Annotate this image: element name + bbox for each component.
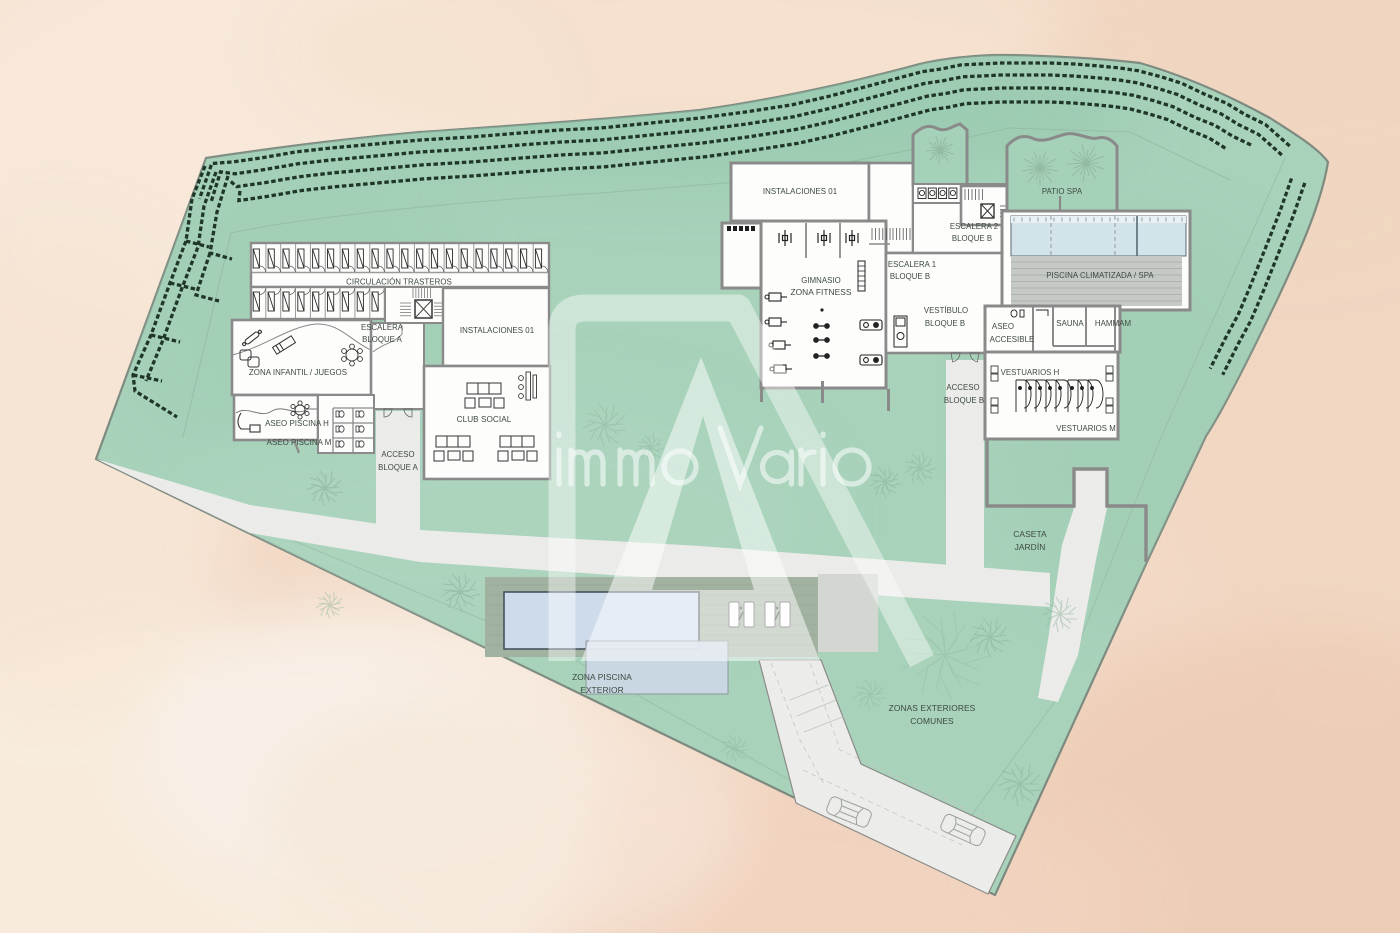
svg-text:BLOQUE B: BLOQUE B (925, 319, 965, 328)
svg-text:ASEO PISCINA M: ASEO PISCINA M (267, 438, 332, 447)
svg-text:ACCESO: ACCESO (381, 450, 414, 459)
svg-text:ASEO PISCINA H: ASEO PISCINA H (265, 419, 329, 428)
svg-text:BLOQUE B: BLOQUE B (890, 272, 930, 281)
svg-text:ASEO: ASEO (992, 322, 1014, 331)
svg-text:ZONAS EXTERIORES: ZONAS EXTERIORES (889, 703, 976, 713)
svg-text:ESCALERA 2: ESCALERA 2 (950, 222, 998, 231)
svg-text:ESCALERA: ESCALERA (361, 323, 404, 332)
svg-text:BLOQUE A: BLOQUE A (378, 463, 419, 472)
svg-text:PATIO SPA: PATIO SPA (1042, 187, 1083, 196)
svg-text:BLOQUE A: BLOQUE A (362, 335, 403, 344)
svg-text:ZONA INFANTIL / JUEGOS: ZONA INFANTIL / JUEGOS (249, 368, 347, 377)
svg-text:VESTÍBULO: VESTÍBULO (924, 306, 968, 315)
svg-text:CLUB SOCIAL: CLUB SOCIAL (457, 415, 512, 424)
svg-text:GIMNASIO: GIMNASIO (801, 276, 840, 285)
svg-text:CIRCULACIÓN TRASTEROS: CIRCULACIÓN TRASTEROS (346, 278, 452, 287)
svg-text:INSTALACIONES 01: INSTALACIONES 01 (460, 326, 534, 335)
svg-text:VESTUARIOS H: VESTUARIOS H (1001, 368, 1060, 377)
svg-text:PISCINA CLIMATIZADA / SPA: PISCINA CLIMATIZADA / SPA (1046, 271, 1154, 280)
svg-text:ZONA PISCINA: ZONA PISCINA (572, 672, 632, 682)
svg-text:ACCESO: ACCESO (946, 383, 979, 392)
svg-text:INSTALACIONES 01: INSTALACIONES 01 (763, 187, 837, 196)
svg-text:ACCESIBLE: ACCESIBLE (990, 335, 1035, 344)
svg-text:COMUNES: COMUNES (910, 716, 954, 726)
svg-text:JARDÍN: JARDÍN (1015, 542, 1046, 552)
svg-text:VESTUARIOS M: VESTUARIOS M (1056, 424, 1116, 433)
svg-text:ZONA FITNESS: ZONA FITNESS (790, 287, 851, 297)
svg-text:BLOQUE B: BLOQUE B (944, 396, 984, 405)
svg-text:SAUNA: SAUNA (1056, 319, 1084, 328)
svg-text:HAMMAM: HAMMAM (1095, 319, 1131, 328)
svg-text:CASETA: CASETA (1013, 529, 1047, 539)
svg-text:EXTERIOR: EXTERIOR (580, 685, 624, 695)
svg-text:ESCALERA 1: ESCALERA 1 (888, 260, 936, 269)
svg-text:BLOQUE B: BLOQUE B (952, 234, 992, 243)
